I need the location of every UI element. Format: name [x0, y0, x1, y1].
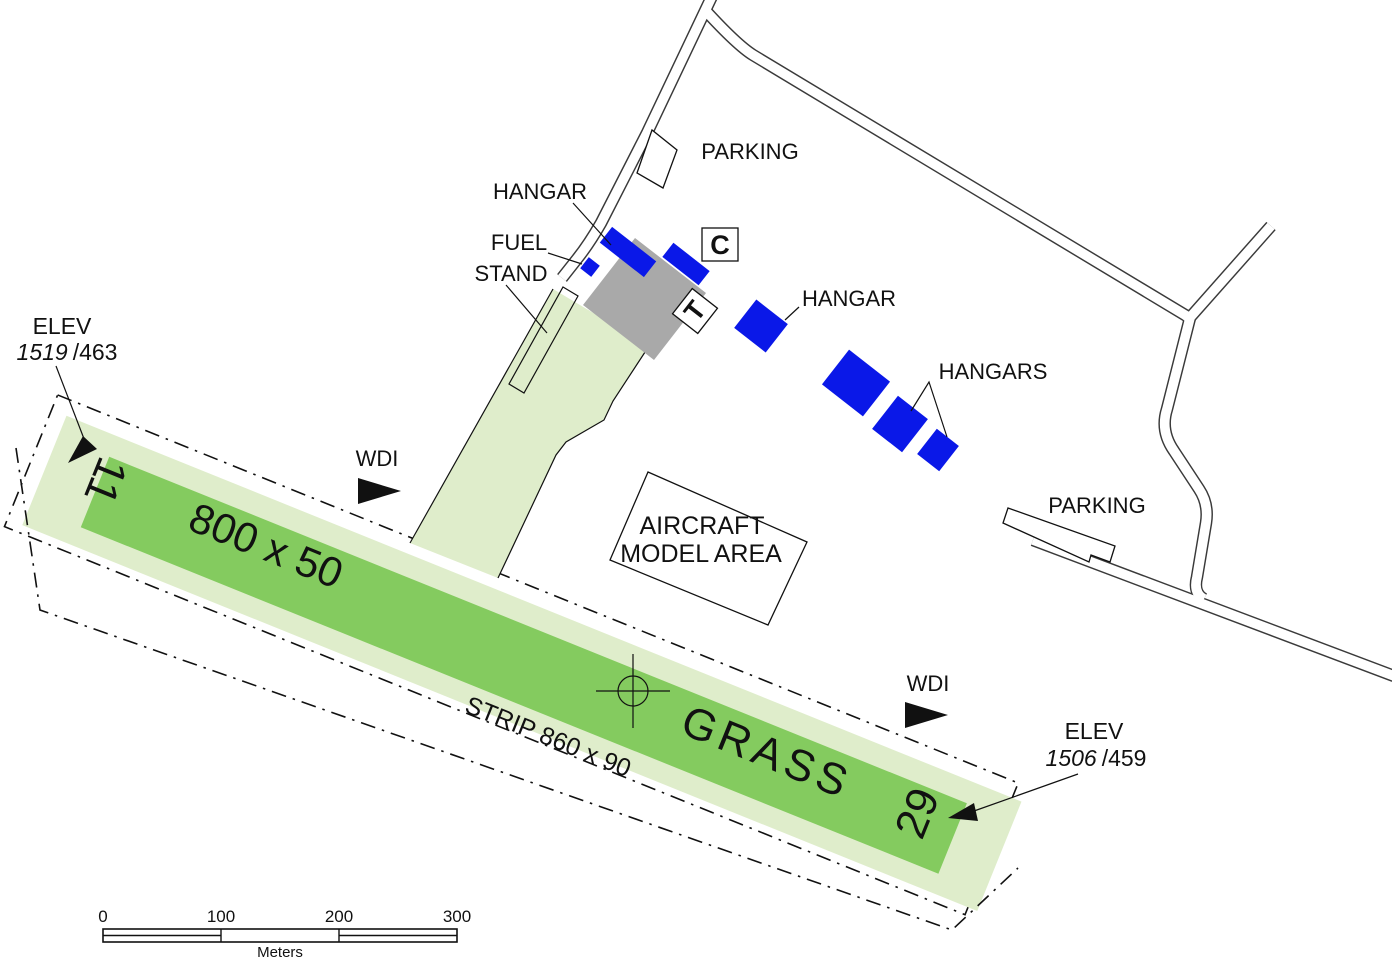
aircraft-model-area-label-line1: AIRCRAFT: [640, 512, 765, 540]
hangars-group-label: HANGARS: [939, 359, 1048, 384]
elev11-value-meters: /463: [73, 339, 118, 365]
scale-tick-300: 300: [443, 907, 471, 926]
elev11-title: ELEV: [33, 313, 92, 339]
road-northeast-branch: [1186, 226, 1271, 322]
stand-label: STAND: [475, 261, 548, 286]
c-sign-letter: C: [710, 230, 730, 260]
parking-north-label: PARKING: [701, 139, 798, 164]
c-sign-box: C: [702, 228, 738, 261]
hangars-group-building-2: [872, 396, 928, 452]
scale-tick-0: 0: [98, 907, 107, 926]
aerodrome-chart: AIRCRAFT MODEL AREA C T WDI WDI ELEV 151…: [0, 0, 1392, 960]
wdi-label-west: WDI: [356, 446, 399, 471]
hangar-east-building: [734, 300, 788, 353]
hangars-group-building-3: [917, 429, 959, 471]
taxiway-area: [410, 289, 649, 578]
svg-text:1506/459: 1506/459: [1046, 745, 1147, 771]
scale-tick-200: 200: [325, 907, 353, 926]
elev29-value-feet: 1506: [1046, 745, 1097, 771]
scale-unit-label: Meters: [257, 944, 303, 960]
stand-leader: [506, 285, 547, 333]
road-parking-boundary: [705, 10, 1190, 318]
aerodrome-diagram: AIRCRAFT MODEL AREA C T WDI WDI ELEV 151…: [0, 0, 1392, 960]
hangars-group-building-1: [822, 350, 890, 417]
wdi-label-east: WDI: [907, 671, 950, 696]
parking-east-label: PARKING: [1048, 493, 1145, 518]
svg-text:1519/463: 1519/463: [17, 339, 118, 365]
hangar-west-label: HANGAR: [493, 179, 587, 204]
elev11-value-feet: 1519: [17, 339, 68, 365]
hangar-east-label: HANGAR: [802, 286, 896, 311]
wdi-icon-west: [358, 478, 401, 504]
aircraft-model-area-label-line2: MODEL AREA: [620, 540, 782, 568]
elev29-title: ELEV: [1065, 718, 1124, 744]
elev29-value-meters: /459: [1102, 745, 1147, 771]
fuel-label: FUEL: [491, 230, 547, 255]
hangar-east-leader: [785, 307, 799, 320]
wdi-icon-east: [905, 702, 948, 728]
scale-bar: 0 100 200 300 Meters: [98, 907, 471, 960]
scale-tick-100: 100: [207, 907, 235, 926]
